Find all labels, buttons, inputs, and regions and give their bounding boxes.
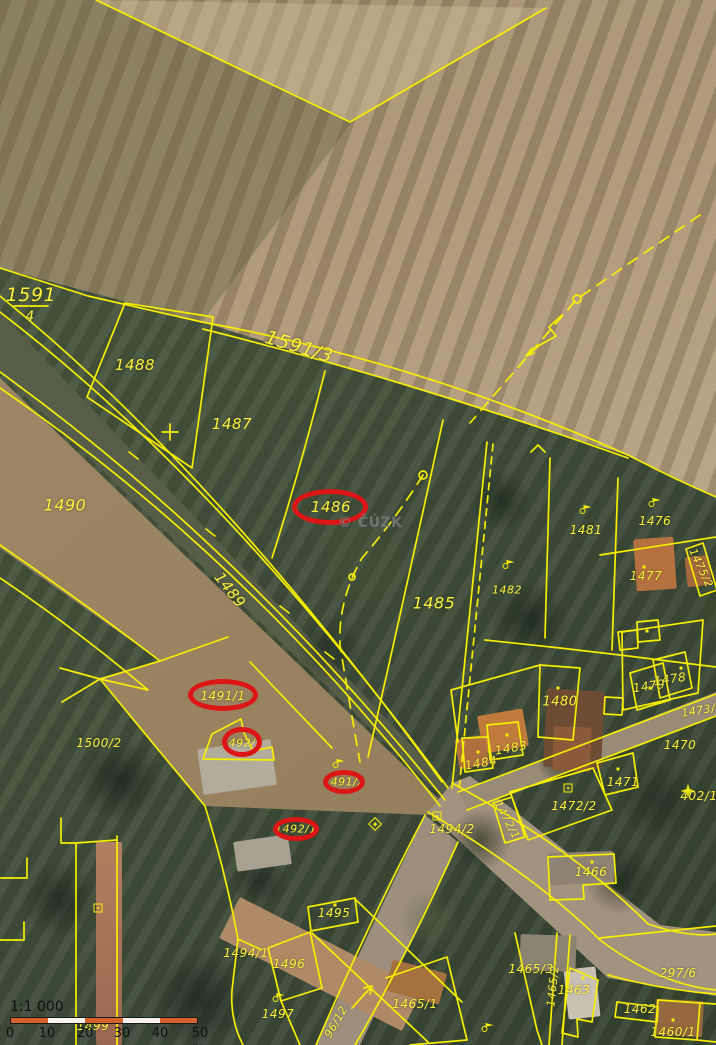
scale-segment	[160, 1018, 197, 1023]
scale-segment	[85, 1018, 122, 1023]
scale-ratio: 1:1 000	[10, 999, 210, 1015]
scale-tick: 30	[114, 1026, 131, 1041]
highlight-ellipse	[222, 727, 262, 757]
scale-segment	[48, 1018, 85, 1023]
scale-tick: 50 m	[192, 1026, 209, 1045]
cuzk-watermark: © ČÚZK	[338, 515, 403, 531]
scale-bar-segments	[10, 1017, 198, 1024]
cadastral-map[interactable]: 1591414881591/31487148614901489148514821…	[0, 0, 716, 1045]
highlight-ellipse	[188, 679, 258, 711]
highlight-ellipse	[323, 770, 365, 794]
scale-tick: 20	[77, 1026, 94, 1041]
scale-tick: 0	[6, 1026, 14, 1041]
scale-segment	[123, 1018, 160, 1023]
scale-tick: 40	[152, 1026, 169, 1041]
scale-ticks: 0 10 20 30 40 50 m	[10, 1024, 210, 1040]
scale-bar: 1:1 000 0 10 20 30 40 50 m	[10, 999, 210, 1040]
scale-segment	[11, 1018, 48, 1023]
scale-tick: 10	[39, 1026, 56, 1041]
highlight-ellipse	[273, 817, 319, 841]
